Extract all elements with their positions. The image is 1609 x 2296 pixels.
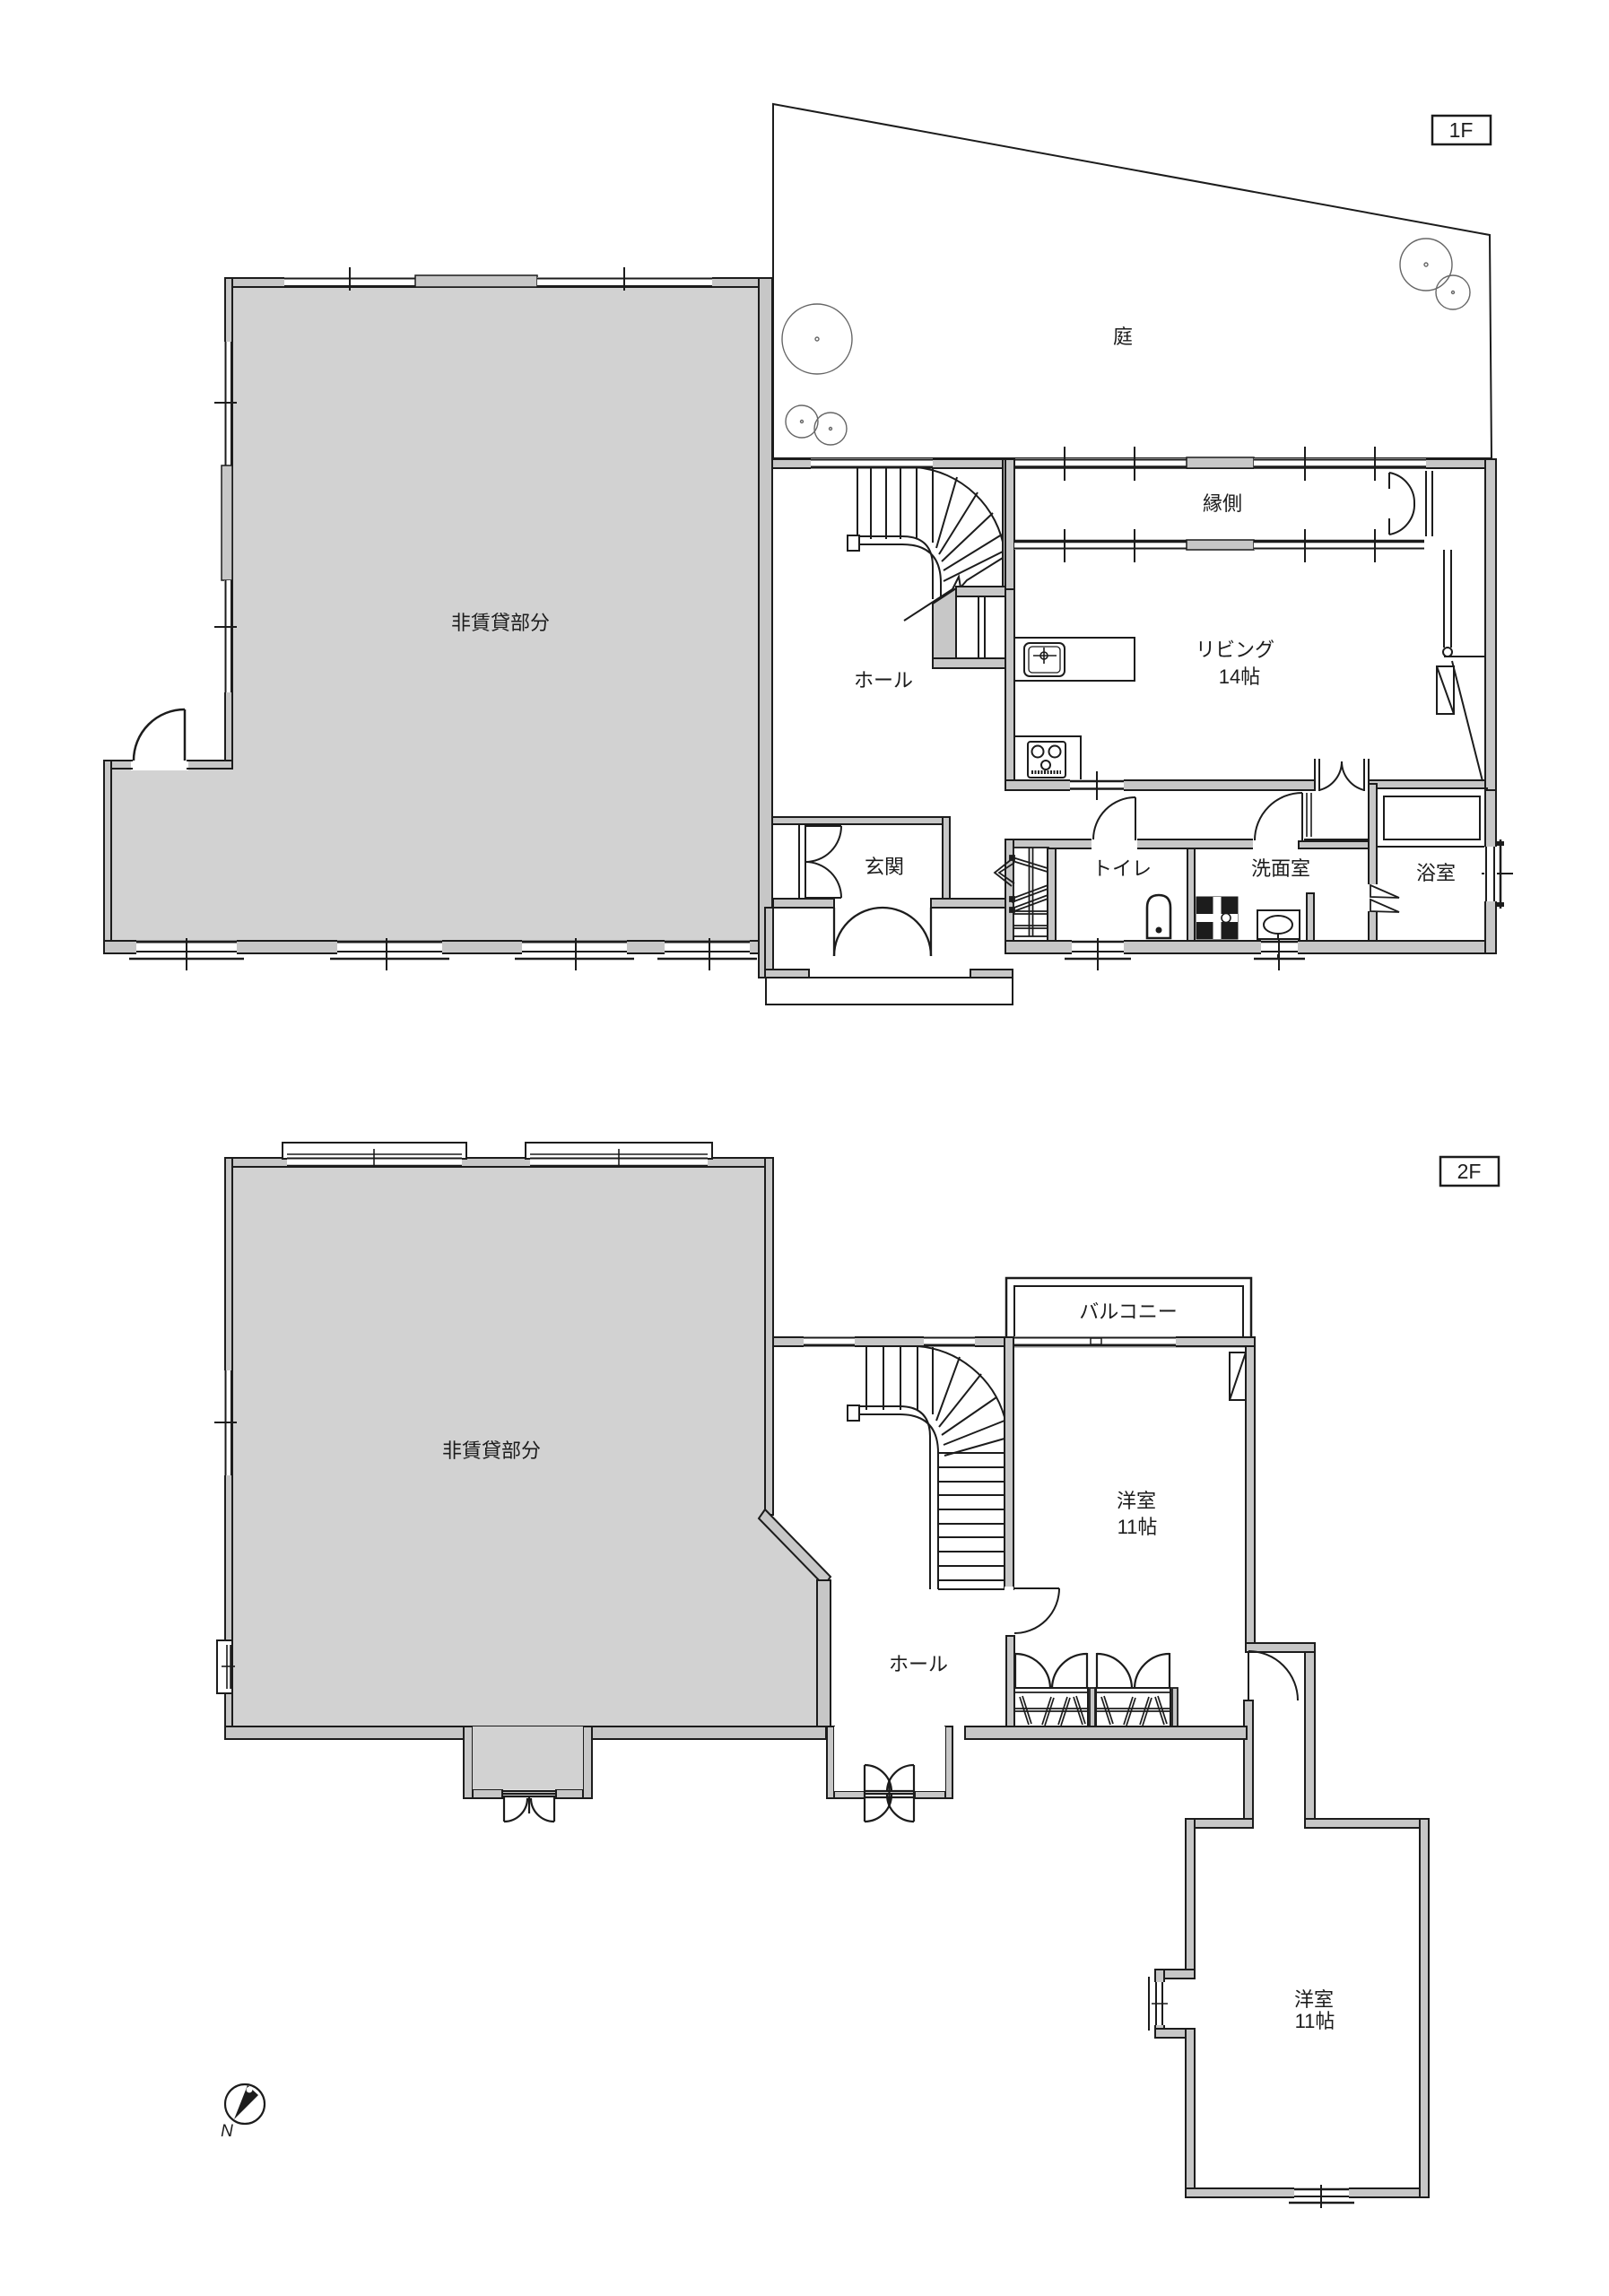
svg-text:2F: 2F (1457, 1160, 1482, 1183)
svg-text:玄関: 玄関 (865, 856, 904, 878)
svg-text:ホール: ホール (889, 1653, 948, 1675)
svg-text:非賃貸部分: 非賃貸部分 (451, 612, 550, 634)
svg-text:ホール: ホール (854, 669, 913, 691)
svg-text:14帖: 14帖 (1219, 665, 1260, 688)
svg-text:N: N (221, 2122, 233, 2141)
svg-text:11帖: 11帖 (1295, 2010, 1335, 2032)
svg-text:バルコニー: バルコニー (1079, 1300, 1178, 1323)
svg-text:1F: 1F (1449, 118, 1474, 142)
svg-text:浴室: 浴室 (1416, 862, 1456, 884)
svg-text:トイレ: トイレ (1092, 857, 1152, 880)
svg-text:11帖: 11帖 (1118, 1516, 1158, 1538)
svg-text:洋室: 洋室 (1117, 1490, 1156, 1512)
svg-text:洗面室: 洗面室 (1251, 857, 1310, 880)
svg-text:リビング: リビング (1196, 639, 1274, 661)
svg-text:非賃貸部分: 非賃貸部分 (442, 1439, 541, 1462)
svg-text:縁側: 縁側 (1203, 492, 1242, 515)
svg-text:庭: 庭 (1113, 326, 1133, 348)
svg-text:洋室: 洋室 (1294, 1988, 1334, 2011)
